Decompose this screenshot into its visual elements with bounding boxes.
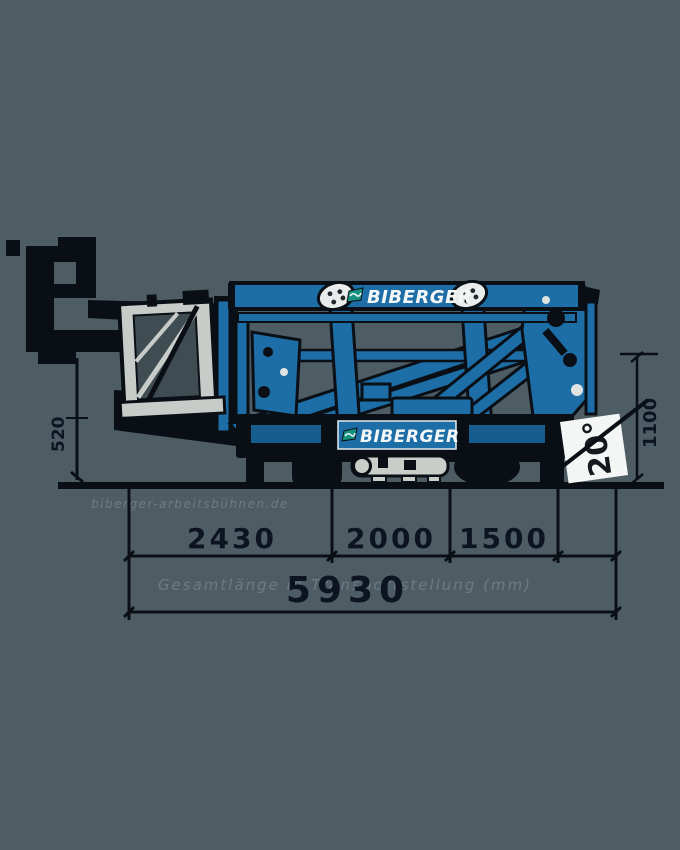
trailer-lift-diagram: biberger-arbeitsbühnen.de xyxy=(0,0,680,850)
dimension-segment-b: 2000 xyxy=(346,522,436,555)
jack-height-dimension xyxy=(66,358,88,482)
dimension-total: 5930 xyxy=(286,570,410,611)
front-wheel xyxy=(292,448,342,486)
rear-wheel xyxy=(454,448,520,486)
pivot-plate xyxy=(252,332,300,416)
ground-line xyxy=(58,482,664,489)
brand-logo-top-text: BIBERGER xyxy=(367,287,472,308)
work-basket xyxy=(115,289,225,418)
brand-logo-panel: BIBERGER xyxy=(338,421,460,449)
jack-height-label: 520 xyxy=(49,416,69,452)
axle-beam xyxy=(352,456,448,482)
brand-logo-panel-text: BIBERGER xyxy=(360,427,460,447)
technical-drawing-canvas: biberger-arbeitsbühnen.de xyxy=(0,0,680,850)
dimension-segment-c: 1500 xyxy=(459,522,549,555)
watermark-text: biberger-arbeitsbühnen.de xyxy=(91,497,289,511)
dimension-segment-a: 2430 xyxy=(187,522,277,555)
